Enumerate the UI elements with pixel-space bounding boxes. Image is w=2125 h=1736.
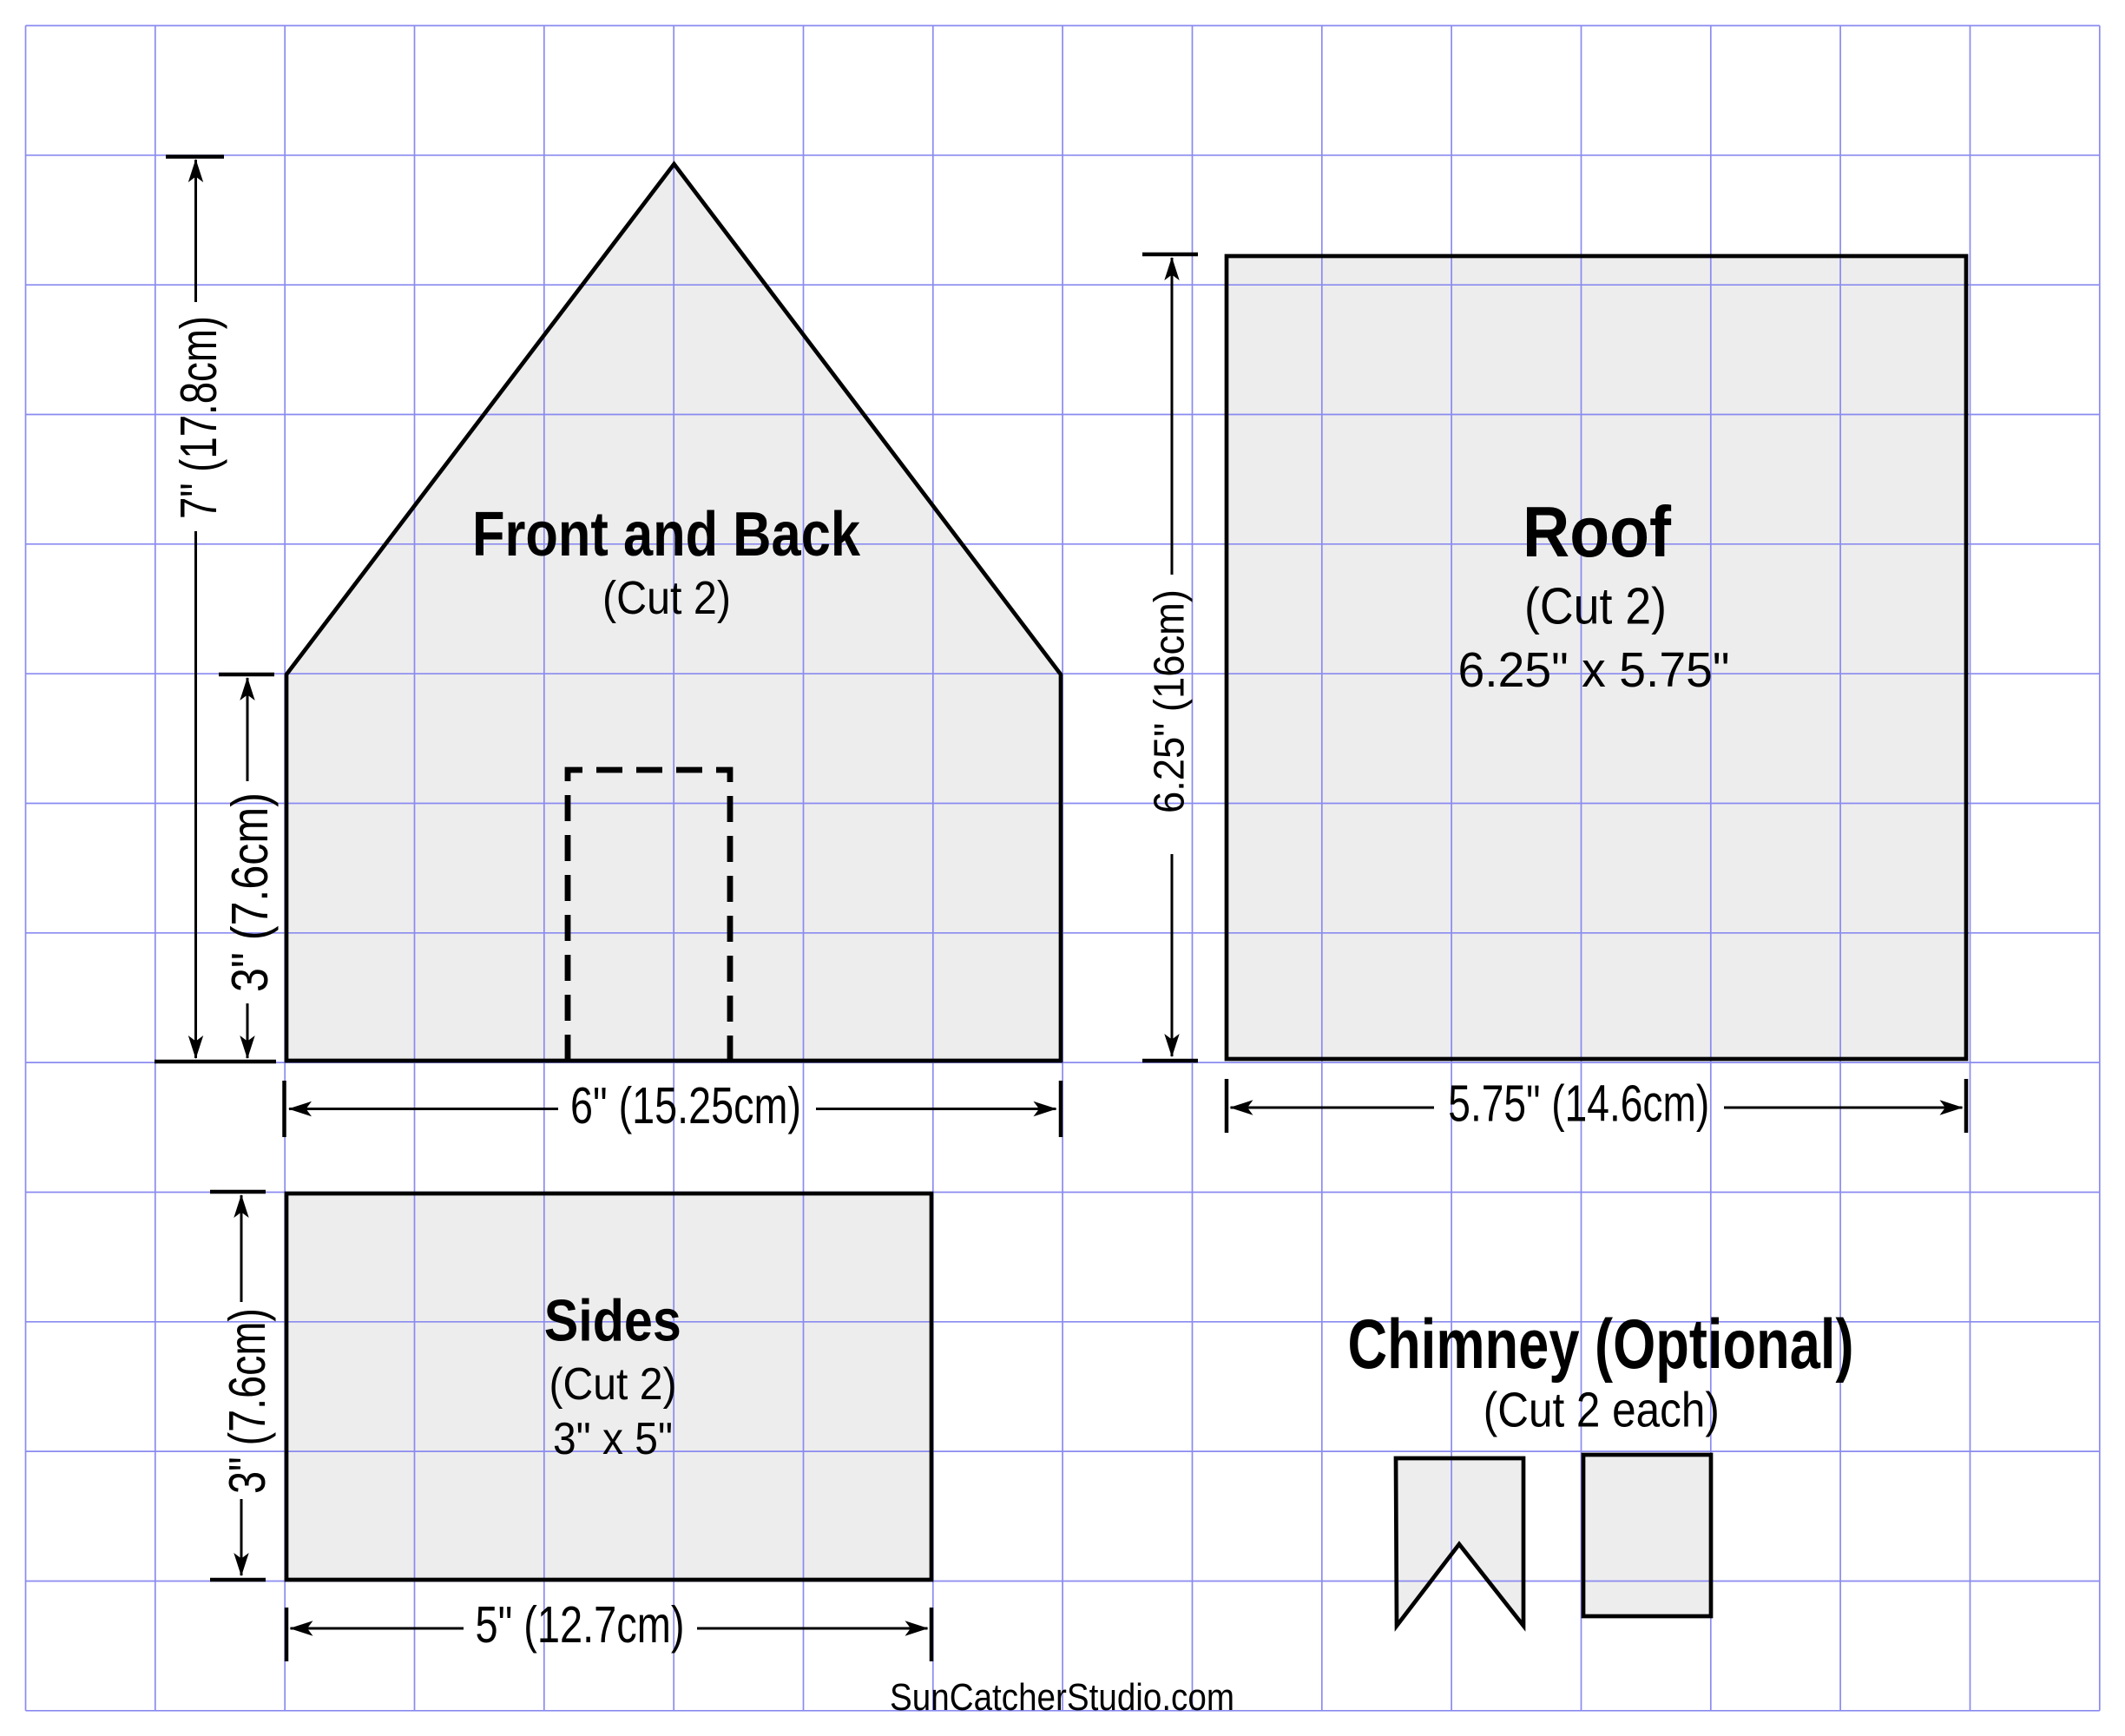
svg-text:Front and Back: Front and Back [472,500,861,569]
svg-text:5.75" (14.6cm): 5.75" (14.6cm) [1448,1075,1709,1133]
svg-text:(Cut 2): (Cut 2) [549,1359,677,1410]
svg-text:3" x 5": 3" x 5" [553,1414,673,1464]
svg-text:6.25" (16cm): 6.25" (16cm) [1147,589,1194,813]
svg-text:(Cut 2): (Cut 2) [1524,577,1667,635]
svg-text:(Cut 2): (Cut 2) [602,572,731,624]
svg-text:6.25" x 5.75": 6.25" x 5.75" [1458,642,1730,698]
svg-text:3" (7.6cm): 3" (7.6cm) [221,792,279,992]
svg-text:7" (17.8cm): 7" (17.8cm) [170,316,227,519]
svg-text:(Cut 2 each): (Cut 2 each) [1484,1382,1720,1437]
svg-text:5" (12.7cm): 5" (12.7cm) [476,1596,685,1654]
svg-text:3" (7.6cm): 3" (7.6cm) [219,1308,276,1494]
svg-text:Sides: Sides [544,1288,681,1354]
svg-text:Roof: Roof [1523,491,1671,572]
svg-text:SunCatcherStudio.com: SunCatcherStudio.com [890,1676,1234,1719]
svg-text:6" (15.25cm): 6" (15.25cm) [570,1077,801,1134]
svg-text:Chimney (Optional): Chimney (Optional) [1348,1305,1854,1384]
